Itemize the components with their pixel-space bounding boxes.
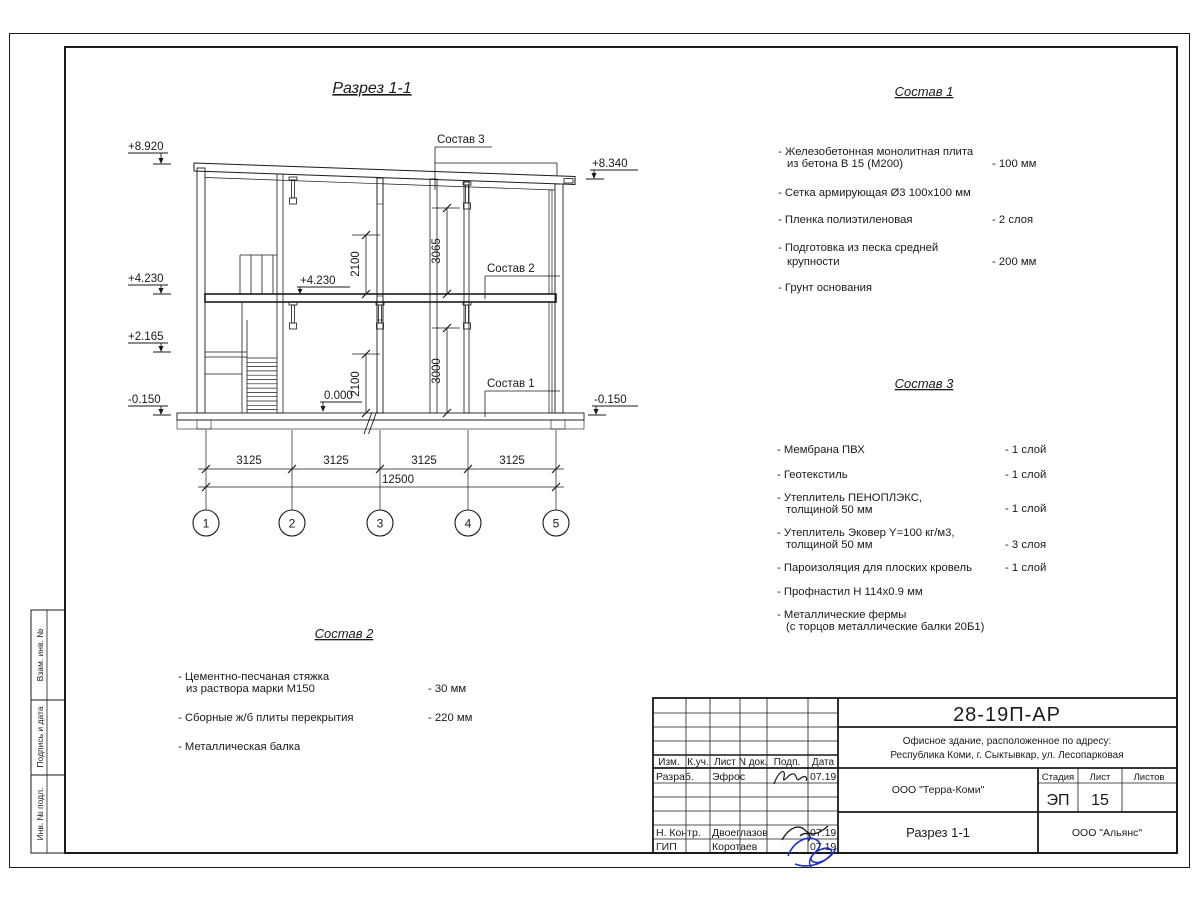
tb-sheet-label: Лист	[1090, 772, 1111, 783]
tb-date-gip: 07.19	[810, 841, 836, 853]
svg-text:- 1 слой: - 1 слой	[1005, 503, 1046, 515]
signature-razrab	[774, 772, 807, 784]
svg-text:3125: 3125	[411, 455, 437, 467]
svg-text:+4.230: +4.230	[128, 273, 164, 285]
svg-text:3125: 3125	[323, 455, 349, 467]
ceiling-line	[205, 178, 555, 191]
tb-col-data: Дата	[812, 757, 835, 768]
svg-text:из бетона В 15 (М200): из бетона В 15 (М200)	[787, 158, 903, 170]
tb-address-line1: Офисное здание, расположенное по адресу:	[903, 735, 1112, 747]
tb-stage-value: ЭП	[1047, 792, 1070, 809]
svg-text:- Металлическая балка: - Металлическая балка	[178, 741, 301, 753]
composition-list-3: Состав 3 - Мембрана ПВХ - 1 слой - Геоте…	[777, 376, 1046, 633]
elev-4230-inner: +4.230	[297, 275, 350, 294]
sand-layer	[177, 420, 584, 429]
svg-text:- 1 слой: - 1 слой	[1005, 562, 1046, 574]
dim-3065: 3065	[431, 204, 460, 298]
elev-4230-left: +4.230	[128, 273, 171, 294]
side-stamps: Взам. инв. № Подпись и дата Инв. № подл.	[31, 610, 65, 853]
tb-col-izm: Изм.	[658, 757, 679, 768]
title-block: Изм. К.уч. Лист N док. Подп. Дата Разраб…	[653, 698, 1177, 868]
svg-text:-0.150: -0.150	[594, 394, 627, 406]
svg-text:2100: 2100	[350, 371, 362, 397]
svg-text:- Железобетонная монолитная п: - Железобетонная монолитная плита	[778, 146, 974, 158]
ground-slab	[177, 413, 584, 420]
right-pilaster-lower	[549, 302, 552, 413]
roof-slab	[194, 163, 575, 185]
drawing-sheet: Взам. инв. № Подпись и дата Инв. № подл.…	[0, 0, 1200, 900]
svg-text:3125: 3125	[499, 455, 525, 467]
svg-text:- Металлические фермы: - Металлические фермы	[777, 609, 906, 621]
dim-2100-lower: 2100	[350, 350, 380, 417]
svg-text:0.000: 0.000	[324, 390, 353, 402]
dim-3000: 3000	[431, 324, 460, 417]
svg-text:- 1 слой: - 1 слой	[1005, 444, 1046, 456]
svg-text:- Утеплитель Эковер Y=100 кг/м: - Утеплитель Эковер Y=100 кг/м3,	[777, 527, 955, 539]
tb-stage-label: Стадия	[1042, 772, 1074, 783]
svg-text:3: 3	[377, 517, 384, 531]
svg-text:4: 4	[465, 517, 472, 531]
svg-text:12500: 12500	[382, 474, 414, 486]
tb-col-kuch: К.уч.	[687, 757, 709, 768]
composition-list-2: Состав 2 - Цементно-песчаная стяжка из р…	[178, 626, 472, 753]
stamp-vzam: Взам. инв. №	[35, 629, 45, 682]
svg-text:5: 5	[553, 517, 560, 531]
tb-role-gip: ГИП	[656, 841, 677, 853]
svg-text:- 1 слой: - 1 слой	[1005, 469, 1046, 481]
column-axis3	[377, 178, 383, 413]
elev-2165: +2.165	[128, 331, 171, 352]
svg-text:(с торцов металлические балки: (с торцов металлические балки 20Б1)	[786, 621, 985, 633]
svg-text:- Сборные ж/б плиты перекрытия: - Сборные ж/б плиты перекрытия	[178, 712, 354, 724]
tb-name-nkontr: Двоеглазов	[712, 827, 768, 839]
list1-title: Состав 1	[895, 84, 954, 99]
mid-floor-slab	[205, 294, 556, 302]
svg-text:Состав 3: Состав 3	[437, 134, 485, 146]
tb-org2: ООО "Альянс"	[1072, 827, 1142, 839]
tb-role-nkontr: Н. Контр.	[656, 827, 701, 839]
tb-role-razrab: Разраб.	[656, 771, 694, 783]
elev-8920: +8.920	[128, 141, 171, 164]
bottom-dimensions: 3125 3125 3125 3125 12500 1 2 3 4 5	[193, 430, 569, 536]
svg-text:- Профнастил Н 114х0.9 мм: - Профнастил Н 114х0.9 мм	[777, 586, 923, 598]
svg-text:- Утеплитель ПЕНОПЛЭКС,: - Утеплитель ПЕНОПЛЭКС,	[777, 492, 922, 504]
tb-sheet-title: Разрез 1-1	[906, 825, 970, 840]
tb-org1: ООО "Терра-Коми"	[892, 784, 985, 796]
left-footing	[197, 420, 211, 429]
stamp-inv: Инв. № подл.	[35, 788, 45, 841]
tb-date-razrab: 07.19	[810, 771, 836, 783]
svg-text:- Мембрана ПВХ: - Мембрана ПВХ	[777, 444, 865, 456]
sheet-svg: Взам. инв. № Подпись и дата Инв. № подл.…	[0, 0, 1200, 900]
elev-8340-right: +8.340	[586, 158, 638, 179]
list2-title: Состав 2	[315, 626, 374, 641]
break-symbol	[364, 412, 377, 434]
svg-text:Состав 2: Состав 2	[487, 263, 535, 275]
tb-sheets-label: Листов	[1134, 772, 1165, 783]
right-footing	[551, 420, 565, 429]
svg-text:- Пароизоляция для плоских кро: - Пароизоляция для плоских кровель	[777, 562, 972, 574]
tb-col-list: Лист	[714, 757, 736, 768]
tb-address-line2: Республика Коми, г. Сыктывкар, ул. Лесоп…	[890, 749, 1123, 761]
right-pilaster-upper	[549, 190, 552, 294]
svg-text:- Пленка полиэтиленовая: - Пленка полиэтиленовая	[778, 214, 912, 226]
svg-text:+8.920: +8.920	[128, 141, 164, 153]
svg-text:2100: 2100	[350, 251, 362, 277]
tb-doc-code: 28-19П-АР	[953, 704, 1061, 726]
svg-text:- 2 слоя: - 2 слоя	[992, 214, 1033, 226]
tb-name-razrab: Эфрос	[712, 771, 745, 783]
composition-callouts: Состав 3 Состав 2 Состав 1	[435, 134, 560, 417]
elev-0150-left: -0.150	[128, 394, 171, 415]
svg-text:толщиной 50 мм: толщиной 50 мм	[786, 539, 873, 551]
roof-end-cap	[564, 179, 573, 184]
svg-text:- Подготовка из песка средней: - Подготовка из песка средней	[778, 242, 938, 254]
tb-sheet-value: 15	[1091, 792, 1109, 809]
vertical-dimensions: 2100 3065 2100 3000	[350, 204, 460, 417]
svg-text:+4.230: +4.230	[300, 275, 336, 287]
column-axis4	[464, 181, 469, 413]
section-drawing: Разрез 1-1	[128, 80, 638, 536]
svg-text:1: 1	[203, 517, 210, 531]
ceiling-hangers	[289, 177, 471, 329]
dim-2100-upper: 2100	[350, 231, 380, 298]
tb-date-nkontr: 07.19	[810, 827, 836, 839]
svg-text:-0.150: -0.150	[128, 394, 161, 406]
svg-text:толщиной 50 мм: толщиной 50 мм	[786, 504, 873, 516]
svg-text:3000: 3000	[431, 358, 443, 384]
tb-col-podp: Подп.	[774, 757, 801, 768]
svg-text:- 30 мм: - 30 мм	[428, 683, 466, 695]
svg-text:2: 2	[289, 517, 296, 531]
tb-name-gip: Коротаев	[712, 841, 758, 853]
left-wall	[197, 168, 205, 413]
svg-text:- Геотекстиль: - Геотекстиль	[777, 469, 848, 481]
axis-bubbles: 1 2 3 4 5	[193, 510, 569, 536]
section-title: Разрез 1-1	[332, 80, 411, 97]
svg-text:Состав 1: Состав 1	[487, 378, 535, 390]
elev-0150-right: -0.150	[588, 394, 638, 415]
list3-title: Состав 3	[895, 376, 954, 391]
tb-col-ndok: N док.	[739, 757, 768, 768]
svg-text:из раствора марки М150: из раствора марки М150	[186, 683, 315, 695]
svg-text:+2.165: +2.165	[128, 331, 164, 343]
svg-text:- 3 слоя: - 3 слоя	[1005, 539, 1046, 551]
svg-text:- Грунт основания: - Грунт основания	[778, 282, 872, 294]
svg-text:- 200 мм: - 200 мм	[992, 256, 1036, 268]
svg-text:+8.340: +8.340	[592, 158, 628, 170]
svg-text:3125: 3125	[236, 455, 262, 467]
svg-text:крупности: крупности	[787, 256, 840, 268]
svg-text:- Сетка армирующая Ø3 100х100: - Сетка армирующая Ø3 100х100 мм	[778, 187, 971, 199]
svg-text:3065: 3065	[431, 238, 443, 264]
stamp-podpis: Подпись и дата	[35, 706, 45, 767]
svg-text:- Цементно-песчаная стяжка: - Цементно-песчаная стяжка	[178, 671, 330, 683]
stairs	[205, 255, 277, 413]
composition-list-1: Состав 1 - Железобетонная монолитная пли…	[778, 84, 1036, 294]
svg-text:- 100 мм: - 100 мм	[992, 158, 1036, 170]
svg-text:- 220 мм: - 220 мм	[428, 712, 472, 724]
